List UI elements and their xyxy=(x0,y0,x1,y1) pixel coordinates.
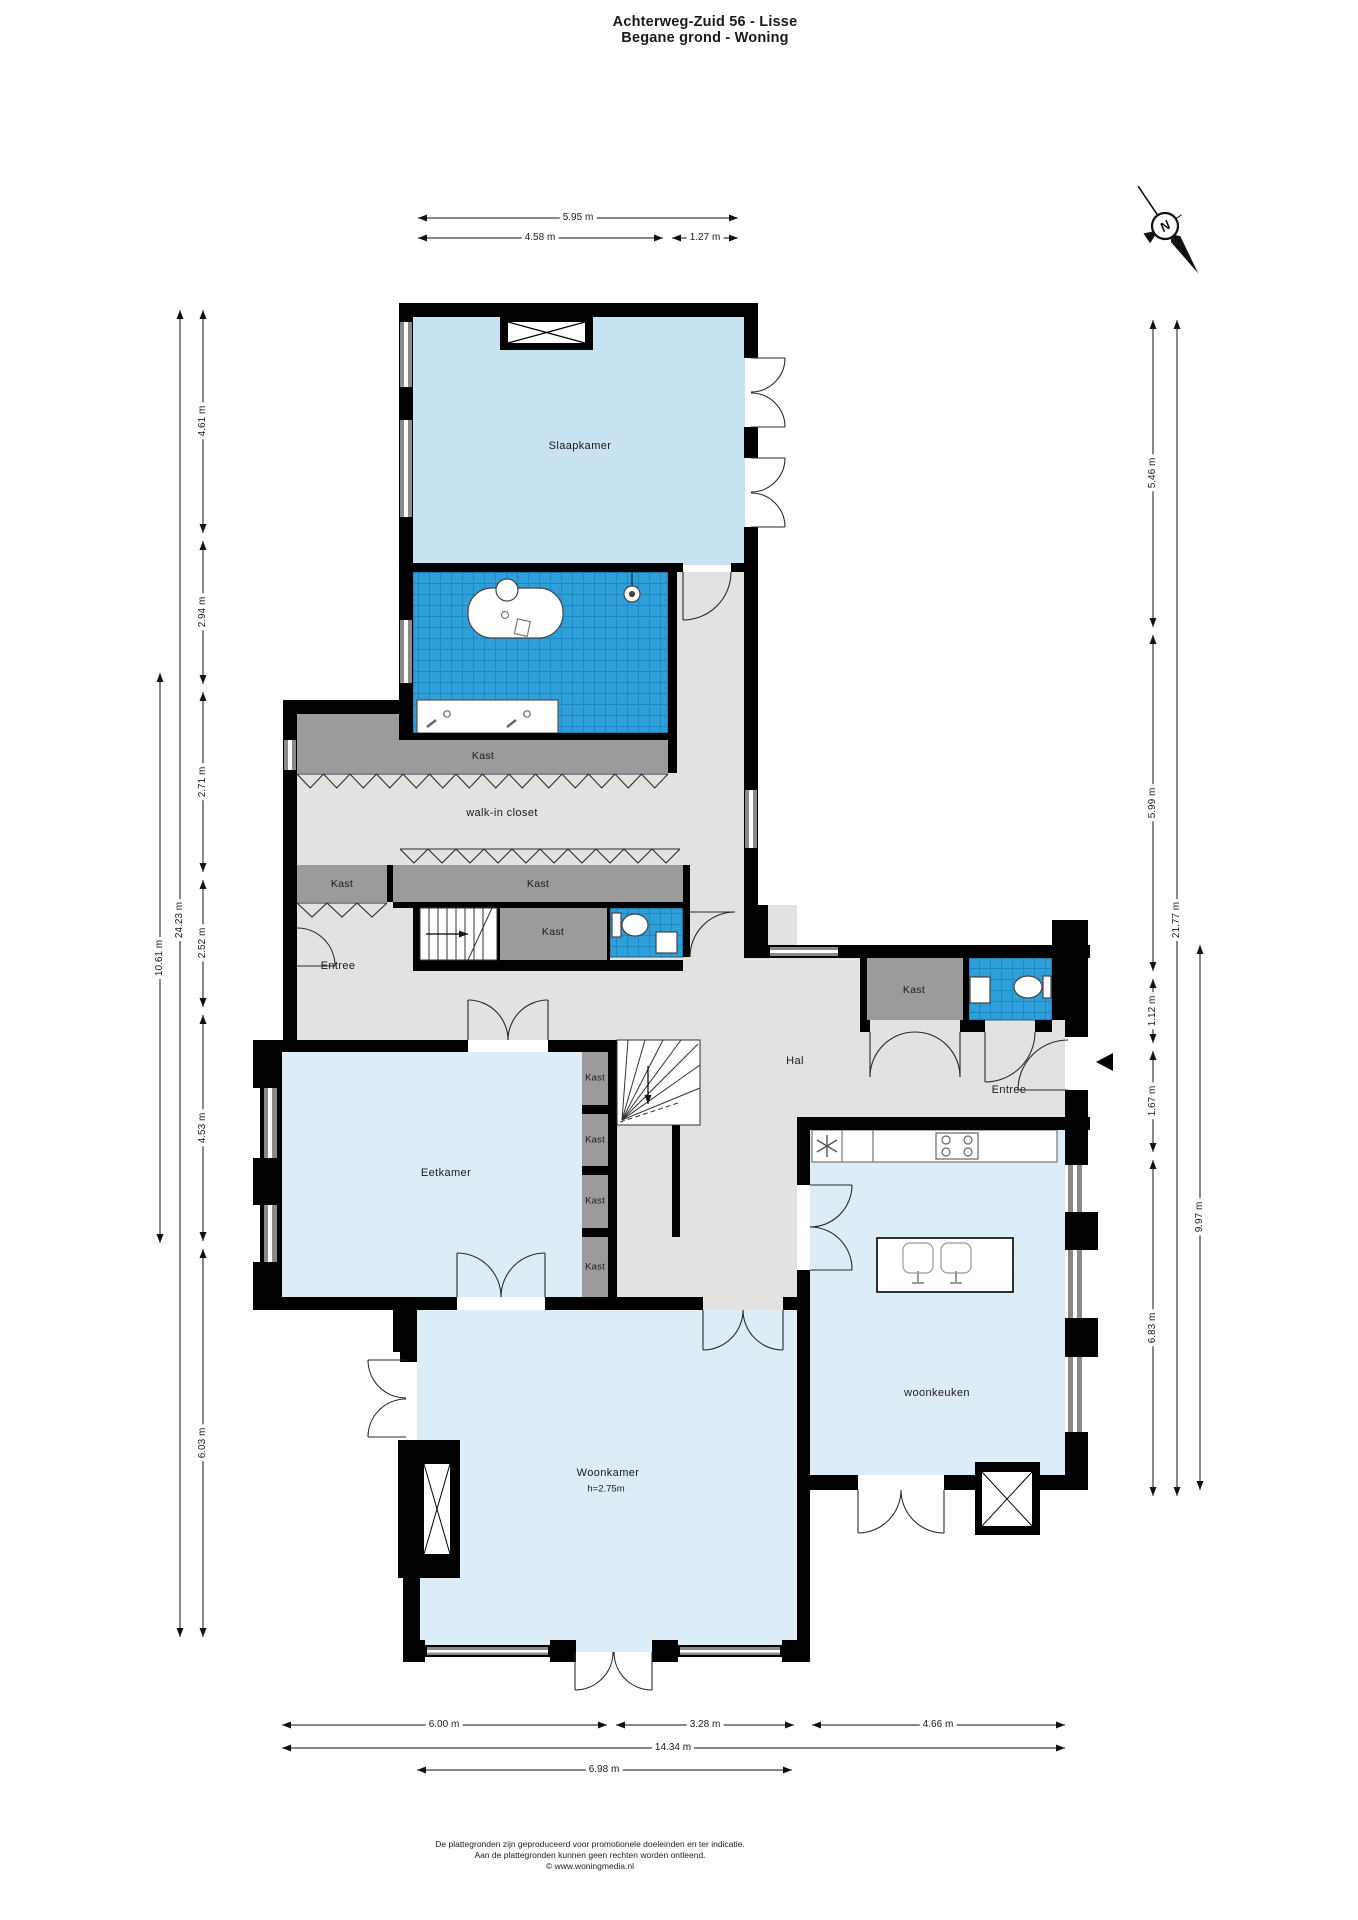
kitchen-counter xyxy=(812,1130,1057,1162)
room-label-entree-right: Entree xyxy=(992,1084,1027,1096)
dim-left-total: 24.23 m xyxy=(174,899,186,941)
chimney-west-flue xyxy=(424,1464,450,1554)
dim-left-seg-5: 4.53 m xyxy=(197,1110,209,1147)
dim-top-right: 1.27 m xyxy=(687,232,724,244)
room-label-kast-col-2: Kast xyxy=(585,1135,605,1146)
room-label-kast-hal: Kast xyxy=(903,984,925,996)
room-label-kast-col-4: Kast xyxy=(585,1262,605,1273)
floorplan-page: N Achterweg-Zuid 56 - Lisse Begane grond… xyxy=(0,0,1358,1920)
room-label-kast-col-3: Kast xyxy=(585,1196,605,1207)
dim-left-seg-2: 2.94 m xyxy=(197,594,209,631)
room-label-kast-large: Kast xyxy=(527,878,549,890)
page-title: Achterweg-Zuid 56 - Lisse xyxy=(613,14,798,30)
stairs-upper xyxy=(420,908,497,960)
room-label-entree-left: Entree xyxy=(321,960,356,972)
washbasin-left xyxy=(656,932,677,953)
room-label-hal: Hal xyxy=(786,1055,804,1067)
room-label-woonkamer-height: h=2.75m xyxy=(587,1484,624,1495)
dim-left-seg-4: 2.52 m xyxy=(197,925,209,962)
page-subtitle: Begane grond - Woning xyxy=(621,30,788,46)
room-label-kast-small: Kast xyxy=(331,878,353,890)
room-label-woonkamer: Woonkamer xyxy=(577,1467,640,1479)
dim-top-left: 4.58 m xyxy=(522,232,559,244)
dim-right-seg-1: 5.46 m xyxy=(1147,455,1159,492)
dim-right-lower-total: 9.97 m xyxy=(1194,1199,1206,1236)
chimney-south-flue xyxy=(982,1472,1032,1526)
room-label-woonkeuken: woonkeuken xyxy=(904,1387,970,1399)
slaapkamer-french-doors-upper xyxy=(751,358,785,427)
dim-bottom-1: 6.00 m xyxy=(426,1719,463,1731)
footer-copyright: © www.woningmedia.nl xyxy=(546,1861,634,1871)
entrance-arrow-icon xyxy=(1096,1053,1113,1071)
room-label-eetkamer: Eetkamer xyxy=(421,1167,471,1179)
dim-right-seg-2: 5.99 m xyxy=(1147,785,1159,822)
woonkeuken-floor xyxy=(810,1130,1065,1475)
room-label-kast-band: Kast xyxy=(472,750,494,762)
dim-right-seg-4: 1.67 m xyxy=(1147,1083,1159,1120)
dim-right-seg-3: 1.12 m xyxy=(1147,993,1159,1030)
dormer-window xyxy=(500,317,593,350)
hall-strip-floor xyxy=(413,971,608,1040)
dim-left-seg-6: 6.03 m xyxy=(197,1425,209,1462)
dim-top-total: 5.95 m xyxy=(560,212,597,224)
washbasin-right xyxy=(970,977,990,1003)
kast-band xyxy=(399,740,668,773)
dim-left-seg-1: 4.61 m xyxy=(197,403,209,440)
woonkamer-west-doors xyxy=(368,1360,406,1437)
dim-right-seg-5: 6.83 m xyxy=(1147,1310,1159,1347)
woonkamer-south-doors xyxy=(575,1652,652,1690)
dim-bottom-2: 3.28 m xyxy=(687,1719,724,1731)
dim-bottom-3: 4.66 m xyxy=(920,1719,957,1731)
footer-disclaimer-1: De plattegronden zijn geproduceerd voor … xyxy=(435,1839,745,1849)
room-label-slaapkamer: Slaapkamer xyxy=(549,440,612,452)
slaapkamer-french-doors-lower xyxy=(751,458,785,527)
dim-left-outer-total: 10.61 m xyxy=(154,937,166,979)
room-label-kast-col-1: Kast xyxy=(585,1073,605,1084)
dim-bottom-woonkamer: 6.98 m xyxy=(586,1764,623,1776)
compass-rose: N xyxy=(1120,175,1214,286)
stairs-lower xyxy=(617,1040,700,1125)
dim-left-seg-3: 2.71 m xyxy=(197,764,209,801)
kast-band-left xyxy=(297,714,399,773)
woonkamer-floor xyxy=(417,1310,797,1652)
dim-right-total: 21.77 m xyxy=(1171,899,1183,941)
footer-disclaimer-2: Aan de plattegronden kunnen geen rechten… xyxy=(474,1850,705,1860)
kitchen-island xyxy=(877,1238,1013,1292)
bathroom-vanity xyxy=(417,700,558,733)
dim-bottom-total: 14.34 m xyxy=(652,1742,694,1754)
room-label-kast-stairs: Kast xyxy=(542,926,564,938)
woonkeuken-south-doors xyxy=(858,1490,944,1533)
room-label-walkin-closet: walk-in closet xyxy=(466,807,538,819)
